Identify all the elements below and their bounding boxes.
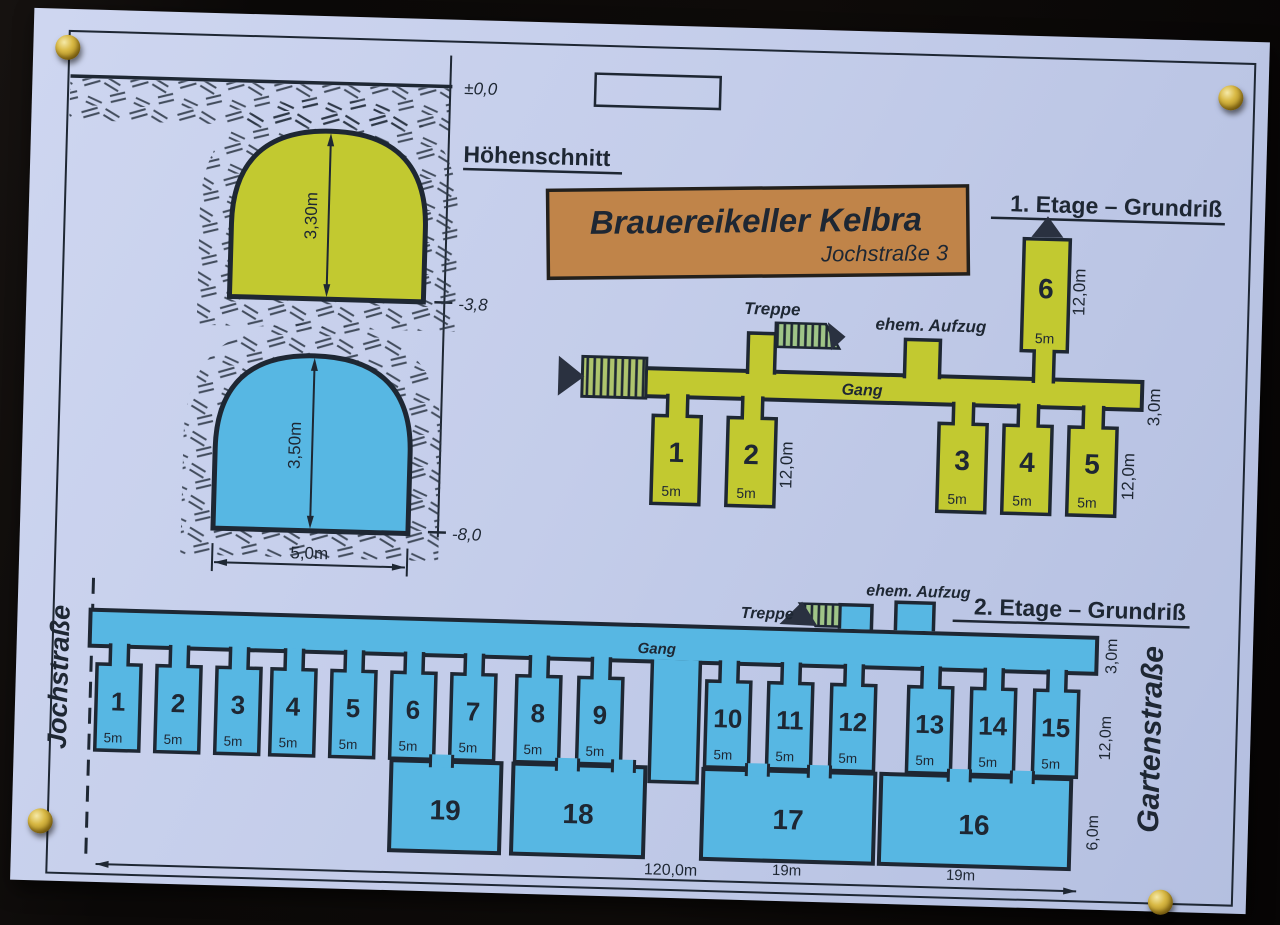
floor1-treppe-stub (747, 333, 775, 375)
elevation-label-top: ±0,0 (464, 79, 498, 99)
svg-text:5m: 5m (661, 483, 681, 500)
svg-text:5m: 5m (978, 755, 997, 771)
sign-title-text: Brauereikeller Kelbra (590, 200, 922, 240)
svg-text:3: 3 (954, 445, 970, 476)
room17-width-label: 19m (772, 862, 802, 880)
svg-text:5m: 5m (458, 740, 477, 756)
svg-text:5: 5 (345, 693, 360, 723)
floor1-room: 6 5m (1020, 216, 1071, 384)
svg-text:5m: 5m (398, 738, 417, 754)
svg-text:13: 13 (915, 709, 945, 740)
arrow-right-icon (1063, 887, 1076, 894)
svg-text:10: 10 (713, 703, 743, 734)
svg-text:1: 1 (110, 686, 125, 716)
street-label-gartenstrasse: Gartenstraße (1132, 646, 1170, 834)
empty-label-box (595, 74, 721, 109)
svg-text:4: 4 (1019, 447, 1036, 478)
height-section: Höhenschnitt ±0,0 -3,8 -8,0 3,30m (57, 45, 625, 582)
floor1-room: 4 5m (1002, 403, 1053, 514)
svg-text:5m: 5m (523, 742, 542, 758)
svg-text:5m: 5m (338, 737, 357, 753)
floor2-large-room: 17 19m (700, 769, 875, 882)
svg-text:5m: 5m (223, 733, 242, 749)
upper-tunnel-height-label: 3,30m (301, 192, 321, 240)
floor2-room: 3 5m (215, 646, 262, 754)
floor2-plan: 2. Etage – Grundriß Jochstraße Gartenstr… (38, 559, 1190, 897)
title-sign: Brauereikeller Kelbra Jochstraße 3 (548, 186, 969, 278)
plan-poster-paper: Höhenschnitt ±0,0 -3,8 -8,0 3,30m (10, 8, 1270, 914)
floor2-room: 4 5m (270, 648, 317, 756)
svg-text:5m: 5m (163, 732, 182, 748)
svg-text:19: 19 (429, 794, 461, 826)
floor1-room5-depth: 12,0m (1118, 453, 1138, 501)
floor2-room: 12 5m (829, 663, 876, 771)
svg-text:5m: 5m (103, 730, 122, 746)
floor2-room-depth: 12,0m (1097, 716, 1115, 761)
svg-text:5m: 5m (775, 749, 794, 765)
svg-text:5m: 5m (585, 744, 604, 760)
floor2-large-room: 18 (511, 764, 645, 858)
tunnel-width-label: 5,0m (290, 543, 328, 563)
svg-text:2: 2 (743, 439, 759, 470)
floor1-room: 2 5m (726, 395, 777, 506)
floor1-room: 5 5m (1067, 405, 1118, 516)
floor1-corridor (642, 368, 1143, 410)
svg-text:12: 12 (838, 707, 868, 738)
floor2-large-room: 16 19m (878, 774, 1071, 887)
floor2-large-room: 19 (389, 760, 501, 853)
svg-text:9: 9 (592, 700, 607, 730)
floor2-aufzug-label: ehem. Aufzug (866, 582, 971, 602)
plan-drawing: Höhenschnitt ±0,0 -3,8 -8,0 3,30m (10, 8, 1270, 914)
floor2-room: 11 5m (766, 662, 813, 770)
floor2-room: 2 5m (155, 645, 202, 753)
svg-text:11: 11 (776, 705, 804, 736)
svg-text:5m: 5m (278, 735, 297, 751)
svg-text:5m: 5m (1077, 494, 1097, 511)
arrow-left-icon (95, 860, 108, 867)
floor1-room6-depth: 12,0m (1069, 268, 1089, 316)
lower-tunnel-height-label: 3,50m (285, 421, 305, 469)
svg-text:5m: 5m (947, 491, 967, 508)
floor2-gang-label: Gang (637, 640, 676, 658)
svg-text:5m: 5m (1012, 492, 1032, 509)
svg-text:5m: 5m (713, 747, 732, 763)
arrow-right-icon (392, 564, 405, 571)
floor2-room: 5 5m (330, 649, 377, 757)
floor2-room: 14 5m (969, 667, 1016, 775)
floor2-aufzug-stub (895, 602, 934, 631)
svg-text:3: 3 (230, 690, 245, 720)
elevation-label-bottom: -8,0 (452, 525, 482, 545)
floor2-room: 15 5m (1032, 669, 1079, 777)
floor1-entrance-ramp-hatch (582, 356, 647, 398)
width-dim-tick-left (212, 543, 213, 571)
floor2-title: 2. Etage – Grundriß (974, 593, 1187, 625)
floor1-gang-label: Gang (841, 382, 883, 400)
section-title: Höhenschnitt (463, 141, 611, 171)
svg-text:2: 2 (170, 688, 185, 718)
floor2-room: 8 5m (515, 655, 562, 763)
svg-text:5m: 5m (838, 751, 857, 767)
svg-text:5: 5 (1084, 448, 1100, 479)
floor2-room: 7 5m (450, 653, 497, 761)
width-dim-tick-right (407, 549, 408, 577)
floor1-room: 1 5m (651, 393, 702, 504)
floor2-room: 6 5m (390, 651, 437, 759)
room16-width-label: 19m (946, 867, 976, 885)
svg-text:5m: 5m (1041, 756, 1060, 772)
floor2-room: 13 5m (906, 666, 953, 774)
svg-text:15: 15 (1041, 712, 1071, 743)
floor1-title: 1. Etage – Grundriß (1010, 190, 1223, 222)
photo-background: Höhenschnitt ±0,0 -3,8 -8,0 3,30m (0, 0, 1280, 925)
svg-text:5m: 5m (736, 485, 756, 502)
total-length-label: 120,0m (644, 861, 698, 879)
elevation-label-mid: -3,8 (458, 295, 488, 315)
sign-subtitle-text: Jochstraße 3 (820, 240, 949, 266)
svg-text:6: 6 (405, 695, 420, 725)
floor1-aufzug-stub (904, 339, 940, 379)
svg-text:6: 6 (1038, 273, 1054, 304)
floor2-room: 1 5m (95, 643, 142, 751)
floor1-corridor-width: 3,0m (1144, 388, 1164, 426)
floor2-room: 9 5m (577, 656, 624, 764)
floor1-room: 3 5m (937, 401, 988, 512)
floor1-aufzug-label: ehem. Aufzug (875, 315, 987, 337)
floor2-corridor-width: 3,0m (1103, 638, 1121, 674)
floor1-treppe-label: Treppe (744, 299, 801, 320)
svg-text:4: 4 (285, 691, 301, 721)
arrow-left-icon (214, 559, 227, 566)
svg-text:14: 14 (978, 711, 1008, 742)
street-label-jochstrasse: Jochstraße (42, 604, 76, 749)
floor2-cross-passage (649, 659, 700, 782)
floor1-room2-depth: 12,0m (776, 441, 796, 489)
floor2-treppe-stub (839, 605, 872, 630)
svg-text:7: 7 (465, 696, 480, 726)
floor2-treppe-label: Treppe (740, 605, 794, 623)
svg-text:5m: 5m (1035, 330, 1055, 347)
svg-text:1: 1 (668, 437, 684, 468)
svg-text:8: 8 (530, 698, 545, 728)
svg-text:17: 17 (772, 804, 804, 836)
floor2-room: 10 5m (704, 660, 751, 768)
width-dim-line (214, 562, 405, 567)
svg-text:16: 16 (958, 809, 990, 841)
svg-text:18: 18 (562, 798, 594, 830)
svg-text:5m: 5m (915, 753, 934, 769)
floor2-large-depth: 6,0m (1084, 815, 1102, 851)
